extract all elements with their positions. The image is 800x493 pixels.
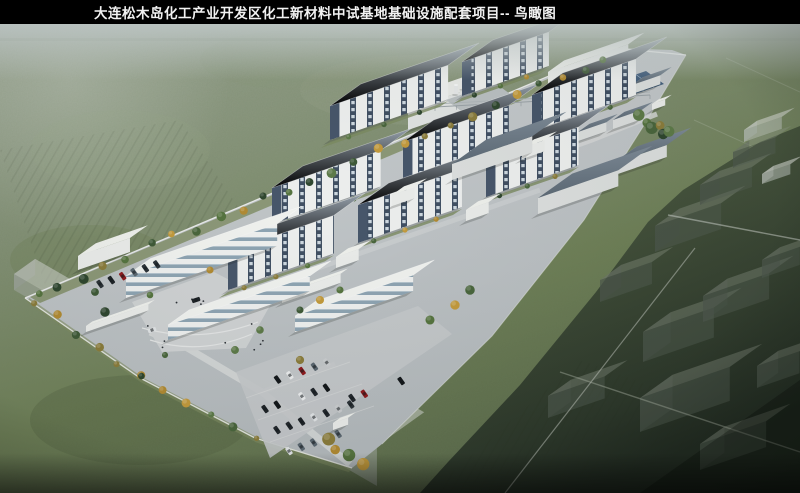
title-bar: 大连松木岛化工产业开发区化工新材料中试基地基础设施配套项目-- 鸟瞰图 <box>0 0 800 24</box>
title-text: 大连松木岛化工产业开发区化工新材料中试基地基础设施配套项目-- 鸟瞰图 <box>0 2 556 22</box>
vignette <box>0 22 800 493</box>
rendering-frame: 大连松木岛化工产业开发区化工新材料中试基地基础设施配套项目-- 鸟瞰图 <box>0 0 800 493</box>
aerial-rendering-image <box>0 0 800 493</box>
